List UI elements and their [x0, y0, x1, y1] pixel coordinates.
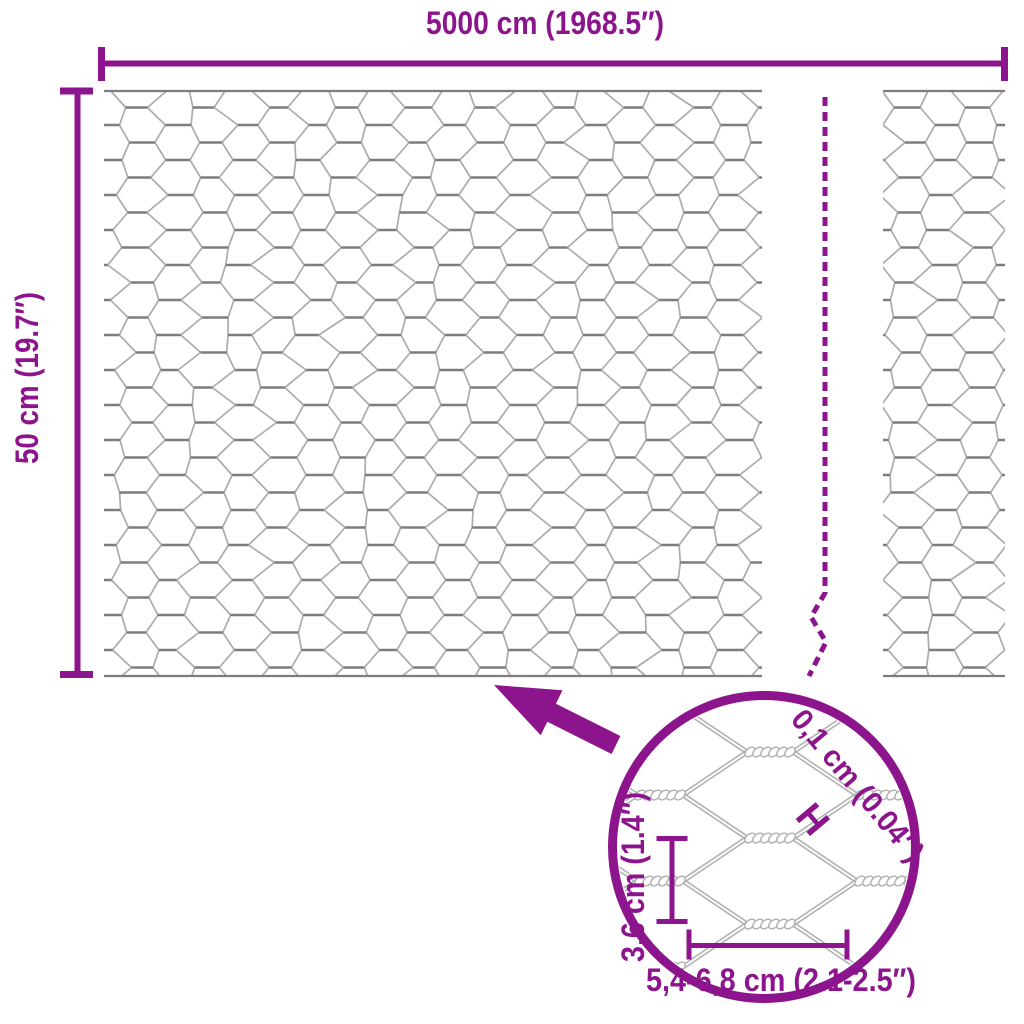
mesh-wire — [929, 598, 933, 616]
mesh-wire — [745, 213, 758, 231]
mesh-wire — [358, 598, 373, 616]
mesh-wire — [465, 125, 477, 143]
wire-mesh-panels — [15, 90, 1024, 685]
detail-twist-wire — [523, 831, 537, 845]
mesh-wire — [356, 160, 370, 178]
detail-twist-wire — [555, 659, 569, 673]
mesh-wire — [991, 493, 1000, 511]
mesh-wire — [604, 318, 616, 336]
mesh-wire — [120, 405, 132, 423]
mesh-wire — [294, 283, 311, 301]
mesh-wire — [155, 125, 165, 143]
mesh-wire — [708, 213, 719, 231]
mesh-wire — [739, 90, 758, 108]
mesh-wire — [709, 283, 717, 301]
mesh-wire — [992, 248, 996, 266]
mesh-wire — [148, 318, 157, 336]
mesh-wire — [855, 143, 859, 161]
detail-wire — [1014, 837, 1024, 880]
mesh-wire — [780, 195, 786, 213]
mesh-wire — [987, 528, 1006, 546]
mesh-wire — [536, 388, 553, 406]
mesh-wire — [570, 405, 578, 423]
detail-twist-wire — [445, 874, 459, 888]
mesh-wire — [714, 370, 719, 388]
mesh-wire — [227, 335, 228, 353]
mesh-wire — [951, 388, 969, 406]
detail-twist-wire — [657, 702, 671, 716]
mesh-wire — [253, 388, 260, 406]
mesh-wire — [79, 388, 95, 406]
mesh-wire — [706, 458, 716, 476]
mesh-wire — [535, 563, 551, 581]
mesh-wire — [466, 318, 480, 336]
mesh-wire — [741, 248, 760, 266]
mesh-wire — [636, 528, 661, 546]
mesh-wire — [78, 598, 94, 616]
mesh-wire — [291, 650, 301, 668]
mesh-wire — [887, 528, 899, 546]
mesh-wire — [605, 528, 613, 546]
mesh-wire — [854, 283, 867, 301]
mesh-wire — [954, 598, 962, 616]
mesh-wire — [288, 580, 301, 598]
mesh-wire — [672, 475, 683, 493]
mesh-wire — [1018, 510, 1024, 528]
mesh-wire — [788, 300, 793, 318]
mesh-wire — [253, 283, 274, 301]
mesh-wire — [710, 650, 717, 668]
detail-wire — [354, 796, 418, 839]
mesh-wire — [360, 248, 371, 266]
mesh-wire — [854, 423, 871, 441]
mesh-wire — [87, 318, 96, 336]
mesh-wire — [321, 563, 341, 581]
mesh-wire — [778, 143, 800, 161]
mesh-wire — [714, 125, 721, 143]
mesh-wire — [248, 528, 266, 546]
mesh-wire — [928, 633, 929, 651]
mesh-wire — [744, 143, 751, 161]
mesh-wire — [678, 283, 692, 301]
mesh-wire — [120, 388, 127, 406]
mesh-wire — [294, 423, 307, 441]
mesh-wire — [637, 300, 659, 318]
mesh-wire — [294, 178, 304, 196]
mesh-wire — [635, 265, 650, 283]
mesh-wire — [226, 248, 229, 266]
mesh-wire — [785, 528, 796, 546]
mesh-wire — [707, 318, 721, 336]
mesh-wire — [146, 633, 159, 651]
mesh-wire — [47, 195, 61, 213]
mesh-wire — [887, 545, 899, 563]
mesh-wire — [877, 510, 898, 528]
mesh-wire — [857, 615, 861, 633]
mesh-wire — [329, 178, 331, 196]
mesh-wire — [673, 125, 694, 143]
mesh-wire — [564, 125, 586, 143]
mesh-wire — [462, 283, 475, 301]
mesh-wire — [921, 388, 928, 406]
mesh-wire — [52, 475, 61, 493]
mesh-wire — [460, 143, 477, 161]
mesh-wire — [952, 318, 971, 336]
mesh-wire — [44, 248, 57, 266]
mesh-wire — [288, 598, 303, 616]
mesh-wire — [742, 353, 758, 371]
mesh-wire — [84, 650, 90, 668]
mesh-wire — [220, 283, 234, 301]
mesh-wire — [429, 423, 439, 441]
mesh-wire — [572, 580, 588, 598]
mesh-wire — [37, 493, 61, 511]
mesh-wire — [323, 598, 335, 616]
mesh-wire — [331, 300, 345, 318]
mesh-wire — [496, 160, 513, 178]
mesh-wire — [494, 213, 517, 231]
mesh-wire — [849, 178, 854, 196]
mesh-wire — [957, 475, 969, 493]
detail-twist-wire — [413, 788, 427, 802]
mesh-wire — [677, 388, 693, 406]
mesh-wire — [49, 300, 62, 318]
mesh-wire — [147, 510, 157, 528]
mesh-wire — [460, 265, 475, 283]
detail-twist-wire — [539, 831, 553, 845]
mesh-wire — [952, 195, 964, 213]
mesh-wire — [325, 230, 341, 248]
detail-twist-wire — [995, 917, 1009, 931]
mesh-wire — [577, 370, 581, 388]
mesh-wire — [672, 458, 685, 476]
mesh-wire — [217, 440, 235, 458]
mesh-wire — [640, 125, 656, 143]
detail-twist-wire — [963, 745, 977, 759]
mesh-wire — [577, 318, 584, 336]
detail-twist-wire — [987, 917, 1001, 931]
mesh-wire — [255, 633, 271, 651]
mesh-wire — [323, 248, 341, 266]
mesh-wire — [222, 143, 233, 161]
detail-wire — [1014, 751, 1024, 794]
mesh-wire — [608, 248, 619, 266]
mesh-wire — [215, 405, 236, 423]
mesh-wire — [951, 580, 963, 598]
mesh-wire — [282, 353, 306, 371]
mesh-wire — [219, 650, 234, 668]
mesh-wire — [778, 90, 789, 108]
mesh-wire — [605, 545, 614, 563]
mesh-wire — [532, 248, 549, 266]
length-break-dashed-line-icon — [809, 97, 826, 676]
mesh-wire — [147, 458, 159, 476]
detail-wire — [354, 710, 418, 753]
mesh-wire — [605, 493, 625, 511]
detail-twist-wire — [563, 917, 577, 931]
mesh-wire — [744, 160, 759, 178]
mesh-wire — [854, 405, 855, 423]
mesh-wire — [434, 563, 445, 581]
mesh-wire — [669, 440, 685, 458]
mesh-wire — [428, 493, 449, 511]
mesh-wire — [321, 580, 336, 598]
detail-wire — [904, 708, 968, 751]
mesh-wire — [324, 633, 343, 651]
mesh-wire — [527, 475, 544, 493]
mesh-wire — [574, 563, 588, 581]
mesh-wire — [747, 125, 751, 143]
mesh-wire — [116, 528, 128, 546]
mesh-wire — [990, 440, 999, 458]
mesh-wire — [671, 353, 690, 371]
mesh-wire — [542, 90, 555, 108]
mesh-wire — [1020, 283, 1024, 301]
detail-twist-wire — [421, 960, 435, 974]
mesh-wire — [846, 230, 866, 248]
mesh-wire — [155, 143, 166, 161]
mesh-wire — [191, 108, 193, 126]
mesh-wire — [637, 545, 661, 563]
mesh-wire — [915, 458, 937, 476]
mesh-wire — [292, 300, 311, 318]
mesh-wire — [647, 493, 652, 511]
mesh-wire — [637, 195, 656, 213]
mesh-wire — [228, 300, 234, 318]
mesh-wire — [178, 370, 194, 388]
mesh-wire — [959, 353, 966, 371]
mesh-wire — [227, 353, 235, 371]
mesh-wire — [707, 300, 717, 318]
mesh-wire — [323, 265, 337, 283]
detail-twist-wire — [743, 659, 757, 673]
mesh-wire — [81, 510, 100, 528]
mesh-wire — [995, 370, 1004, 388]
mesh-wire — [669, 615, 685, 633]
mesh-wire — [116, 195, 127, 213]
mesh-wire — [601, 370, 621, 388]
mesh-wire — [401, 335, 410, 353]
mesh-wire — [780, 633, 794, 651]
mesh-wire — [888, 650, 903, 668]
mesh-wire — [217, 545, 228, 563]
detail-twist-wire — [555, 831, 569, 845]
mesh-wire — [255, 615, 272, 633]
mesh-wire — [603, 615, 620, 633]
mesh-wire — [775, 563, 789, 581]
mesh-wire — [365, 528, 367, 546]
mesh-wire — [365, 510, 367, 528]
mesh-wire — [951, 405, 972, 423]
mesh-wire — [500, 230, 517, 248]
mesh-wire — [989, 195, 1012, 213]
diagram-canvas: 5000 cm (1968.5″) 50 cm (19.7″) 0,1 cm (… — [0, 0, 1024, 1024]
mesh-wire — [890, 300, 893, 318]
mesh-wire — [428, 475, 437, 493]
mesh-wire — [998, 615, 1012, 633]
mesh-wire — [146, 615, 158, 633]
mesh-wire — [433, 248, 439, 266]
mesh-wire — [745, 230, 760, 248]
mesh-wire — [147, 563, 159, 581]
mesh-wire — [465, 528, 472, 546]
mesh-wire — [854, 265, 859, 283]
mesh-wire — [609, 440, 616, 458]
mesh-wire — [436, 335, 445, 353]
mesh-wire — [714, 335, 721, 353]
detail-wire — [462, 923, 526, 966]
mesh-wire — [573, 353, 581, 371]
mesh-wire — [780, 370, 794, 388]
mesh-wire — [295, 475, 306, 493]
detail-twist-wire — [1003, 659, 1017, 673]
mesh-wire — [847, 300, 866, 318]
mesh-wire — [176, 563, 200, 581]
mesh-wire — [922, 545, 933, 563]
mesh-wire — [679, 633, 684, 651]
mesh-wire — [400, 615, 407, 633]
detail-wire — [354, 882, 418, 925]
mesh-wire — [108, 265, 131, 283]
detail-twist-wire — [453, 960, 467, 974]
mesh-wire — [424, 440, 439, 458]
mesh-wire — [648, 178, 656, 196]
mesh-wire — [679, 650, 684, 668]
mesh-wire — [819, 143, 836, 161]
mesh-wire — [333, 440, 340, 458]
mesh-wire — [426, 195, 436, 213]
mesh-wire — [605, 510, 614, 528]
mesh-wire — [425, 510, 448, 528]
mesh-wire — [986, 265, 997, 283]
mesh-wire — [891, 213, 898, 231]
mesh-wire — [951, 563, 976, 581]
mesh-wire — [298, 633, 301, 651]
detail-wire — [1012, 753, 1024, 796]
detail-twist-wire — [987, 745, 1001, 759]
mesh-wire — [778, 125, 795, 143]
mesh-wire — [458, 440, 477, 458]
detail-twist-wire — [413, 874, 427, 888]
mesh-wire — [256, 230, 274, 248]
detail-wire — [464, 753, 528, 796]
mesh-wire — [995, 388, 1003, 406]
mesh-wire — [807, 230, 820, 248]
mesh-wire — [672, 335, 690, 353]
mesh-wire — [256, 160, 274, 178]
mesh-wire — [45, 318, 63, 336]
mesh-wire — [397, 300, 406, 318]
mesh-wire — [78, 580, 94, 598]
mesh-wire — [212, 370, 235, 388]
mesh-wire — [779, 248, 794, 266]
mesh-wire — [817, 248, 820, 266]
mesh-wire — [850, 580, 863, 598]
detail-twist-wire — [783, 659, 797, 673]
mesh-wire — [679, 178, 694, 196]
mesh-wire — [120, 440, 125, 458]
mesh-wire — [678, 580, 691, 598]
mesh-wire — [713, 160, 726, 178]
mesh-wire — [252, 335, 262, 353]
detail-twist-wire — [531, 831, 545, 845]
detail-twist-wire — [971, 831, 985, 845]
mesh-wire — [84, 335, 95, 353]
mesh-wire — [635, 440, 646, 458]
mesh-wire — [425, 318, 444, 336]
mesh-wire — [778, 475, 786, 493]
detail-twist-wire — [1003, 917, 1017, 931]
mesh-wire — [995, 423, 998, 441]
mesh-wire — [473, 493, 478, 511]
mesh-wire — [397, 230, 415, 248]
mesh-wire — [255, 650, 269, 668]
mesh-wire — [153, 405, 168, 423]
mesh-wire — [564, 475, 581, 493]
mesh-wire — [574, 90, 578, 108]
mesh-wire — [704, 493, 718, 511]
mesh-wire — [503, 335, 516, 353]
mesh-wire — [738, 545, 751, 563]
mesh-wire — [920, 335, 927, 353]
detail-twist-wire — [979, 917, 993, 931]
mesh-wire — [358, 90, 369, 108]
mesh-wire — [641, 230, 653, 248]
mesh-wire — [257, 353, 263, 371]
mesh-wire — [599, 650, 611, 668]
mesh-wire — [292, 248, 305, 266]
mesh-wire — [366, 633, 379, 651]
mesh-wire — [499, 300, 510, 318]
mesh-wire — [467, 633, 483, 651]
mesh-wire — [500, 580, 512, 598]
detail-wire — [1014, 882, 1024, 925]
mesh-wire — [253, 440, 271, 458]
mesh-height-label: 3,6 cm (1.4″) — [615, 792, 651, 962]
mesh-wire — [330, 528, 345, 546]
mesh-wire — [258, 125, 270, 143]
mesh-wire — [295, 143, 296, 161]
mesh-wire — [42, 580, 58, 598]
detail-twist-wire — [437, 960, 451, 974]
mesh-wire — [257, 178, 274, 196]
mesh-wire — [295, 493, 300, 511]
mesh-wire — [918, 248, 932, 266]
mesh-wire — [288, 108, 309, 126]
mesh-wire — [883, 580, 903, 598]
mesh-wire — [743, 650, 759, 668]
detail-twist-wire — [649, 702, 663, 716]
mesh-wire — [497, 423, 515, 441]
mesh-wire — [189, 545, 201, 563]
mesh-wire — [852, 545, 860, 563]
mesh-wire — [543, 318, 551, 336]
mesh-wire — [956, 160, 973, 178]
mesh-wire — [429, 615, 444, 633]
mesh-wire — [536, 440, 546, 458]
mesh-wire — [149, 580, 159, 598]
mesh-wire — [993, 300, 999, 318]
mesh-wire — [818, 668, 835, 686]
mesh-wire — [294, 265, 304, 283]
mesh-wire — [569, 633, 578, 651]
mesh-wire — [711, 108, 721, 126]
detail-wire — [464, 708, 528, 751]
mesh-wire — [112, 563, 121, 581]
detail-twist-wire — [413, 702, 427, 716]
mesh-wire — [780, 213, 788, 231]
detail-twist-wire — [885, 702, 899, 716]
